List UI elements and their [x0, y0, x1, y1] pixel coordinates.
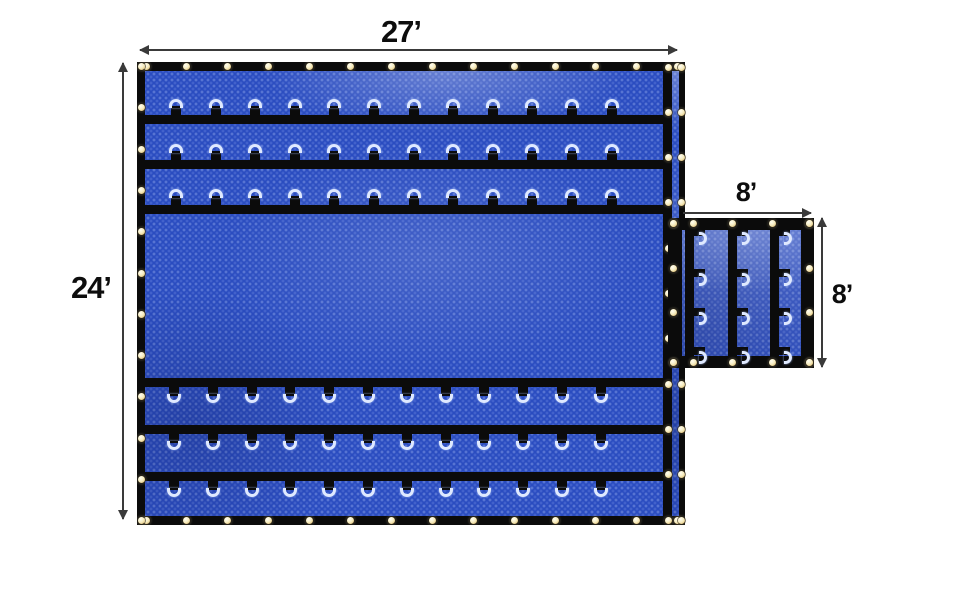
grommet [138, 435, 145, 442]
d-ring [282, 386, 298, 404]
d-ring-arc [367, 144, 381, 153]
d-ring-arc [439, 441, 453, 450]
grommet [665, 517, 672, 524]
d-ring [445, 99, 461, 117]
grommet [806, 309, 813, 316]
grommet [678, 199, 685, 206]
d-ring-arc [167, 394, 181, 403]
grommet [138, 270, 145, 277]
grommet [633, 63, 640, 70]
grommet [690, 220, 697, 227]
d-ring [208, 189, 224, 207]
d-ring-arc [288, 189, 302, 198]
d-ring-arc [322, 488, 336, 497]
d-ring [244, 386, 260, 404]
arrowhead-up-icon [118, 62, 128, 72]
d-ring-arc [699, 351, 707, 364]
d-ring [287, 144, 303, 162]
d-ring [247, 99, 263, 117]
d-ring [287, 99, 303, 117]
d-ring [205, 480, 221, 498]
d-ring-arc [594, 394, 608, 403]
d-ring-arc [206, 488, 220, 497]
grommet [138, 228, 145, 235]
grommet [670, 309, 677, 316]
d-ring [476, 433, 492, 451]
webbing-strip [685, 228, 694, 358]
d-ring [485, 99, 501, 117]
d-ring [321, 480, 337, 498]
d-ring [476, 386, 492, 404]
tarp-dimension-diagram: 27’ 24’ 8’ 8’ [0, 0, 970, 600]
dimension-line [683, 212, 811, 214]
d-ring-arc [361, 441, 375, 450]
d-ring-arc [605, 189, 619, 198]
d-ring [168, 189, 184, 207]
flap-width-dimension-label: 8’ [696, 179, 796, 206]
grommet [511, 517, 518, 524]
d-ring [554, 386, 570, 404]
d-ring [244, 433, 260, 451]
grommet [265, 63, 272, 70]
main-tarp [137, 62, 685, 525]
d-ring-arc [283, 394, 297, 403]
d-ring-arc [327, 189, 341, 198]
d-ring [205, 433, 221, 451]
d-ring [438, 433, 454, 451]
d-ring [321, 386, 337, 404]
d-ring [360, 386, 376, 404]
grommet [806, 359, 813, 366]
grommet [769, 220, 776, 227]
grommet [665, 64, 672, 71]
d-ring [515, 480, 531, 498]
d-ring [208, 99, 224, 117]
d-ring-arc [594, 441, 608, 450]
grommet [633, 517, 640, 524]
d-ring-arc [446, 144, 460, 153]
d-ring-arc [248, 189, 262, 198]
grommet [690, 359, 697, 366]
main-width-dimension-label: 27’ [351, 16, 451, 47]
d-ring [208, 144, 224, 162]
d-ring-arc [245, 488, 259, 497]
grommet [347, 517, 354, 524]
grommet [592, 517, 599, 524]
grommet [665, 199, 672, 206]
grommet [678, 471, 685, 478]
arrowhead-right-icon [668, 45, 678, 55]
d-ring-arc [555, 441, 569, 450]
d-ring [166, 480, 182, 498]
webbing-strip [728, 228, 737, 358]
grommet [769, 359, 776, 366]
d-ring-arc [486, 99, 500, 108]
grommet [665, 471, 672, 478]
grommet [138, 311, 145, 318]
d-ring [445, 144, 461, 162]
d-ring-arc [322, 394, 336, 403]
d-ring [399, 386, 415, 404]
grommet [306, 63, 313, 70]
d-ring [366, 189, 382, 207]
d-ring-arc [367, 189, 381, 198]
d-ring-arc [516, 488, 530, 497]
webbing-strip [770, 228, 779, 358]
grommet [388, 517, 395, 524]
d-ring [166, 386, 182, 404]
grommet [552, 63, 559, 70]
d-ring [476, 480, 492, 498]
d-ring [524, 144, 540, 162]
d-ring [326, 144, 342, 162]
d-ring [445, 189, 461, 207]
grommet [678, 64, 685, 71]
d-ring-arc [477, 394, 491, 403]
grommet [729, 359, 736, 366]
d-ring-arc [327, 144, 341, 153]
d-ring-arc [477, 441, 491, 450]
d-ring-arc [169, 99, 183, 108]
d-ring-arc [486, 189, 500, 198]
d-ring-arc [209, 144, 223, 153]
d-ring-arc [248, 144, 262, 153]
d-ring [168, 144, 184, 162]
main-width-dimension-line [140, 44, 677, 56]
d-ring-arc [555, 488, 569, 497]
d-ring [366, 144, 382, 162]
d-ring [282, 480, 298, 498]
d-ring-arc [605, 99, 619, 108]
d-ring [321, 433, 337, 451]
d-ring-arc [565, 144, 579, 153]
d-ring [360, 433, 376, 451]
d-ring [564, 99, 580, 117]
grommet [347, 63, 354, 70]
grommet [138, 187, 145, 194]
d-ring-arc [439, 488, 453, 497]
grommet [183, 517, 190, 524]
d-ring-arc [605, 144, 619, 153]
d-ring [593, 386, 609, 404]
grommet [138, 476, 145, 483]
dimension-line [140, 49, 677, 51]
d-ring [524, 189, 540, 207]
dimension-line [122, 63, 124, 519]
d-ring [438, 480, 454, 498]
d-ring-arc [361, 488, 375, 497]
d-ring-arc [209, 189, 223, 198]
d-ring-arc [742, 351, 750, 364]
d-ring [282, 433, 298, 451]
grommet [470, 63, 477, 70]
grommet [665, 154, 672, 161]
grommet [183, 63, 190, 70]
d-ring-arc [288, 99, 302, 108]
d-ring-arc [206, 394, 220, 403]
grommet [265, 517, 272, 524]
d-ring-arc [407, 99, 421, 108]
d-ring-arc [283, 488, 297, 497]
grommet [670, 220, 677, 227]
d-ring-arc [555, 394, 569, 403]
dimension-line [821, 218, 823, 367]
d-ring [247, 144, 263, 162]
arrowhead-down-icon [817, 358, 827, 368]
arrowhead-right-icon [802, 208, 812, 218]
d-ring-arc [361, 394, 375, 403]
d-ring-arc [525, 189, 539, 198]
d-ring [524, 99, 540, 117]
side-flap-fabric [682, 230, 801, 356]
d-ring [247, 189, 263, 207]
grommet [306, 517, 313, 524]
d-ring [166, 433, 182, 451]
grommet [138, 146, 145, 153]
d-ring [366, 99, 382, 117]
flap-height-dimension-line [816, 218, 828, 367]
d-ring [205, 386, 221, 404]
d-ring [485, 144, 501, 162]
grommet [670, 359, 677, 366]
grommet [429, 517, 436, 524]
d-ring-arc [167, 441, 181, 450]
d-ring [554, 433, 570, 451]
grommet [470, 517, 477, 524]
d-ring [593, 480, 609, 498]
d-ring-arc [565, 99, 579, 108]
grommet [138, 104, 145, 111]
d-ring-arc [516, 441, 530, 450]
side-flap [668, 218, 814, 368]
grommet [670, 265, 677, 272]
grommet [665, 109, 672, 116]
d-ring-arc [477, 488, 491, 497]
d-ring-arc [169, 189, 183, 198]
d-ring [360, 480, 376, 498]
d-ring [406, 144, 422, 162]
d-ring-arc [400, 441, 414, 450]
d-ring-arc [439, 394, 453, 403]
d-ring-arc [367, 99, 381, 108]
grommet [224, 517, 231, 524]
grommet [678, 154, 685, 161]
d-ring [244, 480, 260, 498]
d-ring-arc [525, 144, 539, 153]
d-ring-arc [327, 99, 341, 108]
d-ring [515, 386, 531, 404]
grommet [138, 393, 145, 400]
d-ring [604, 189, 620, 207]
d-ring [604, 99, 620, 117]
grommet [665, 381, 672, 388]
d-ring-arc [784, 351, 792, 364]
d-ring-arc [209, 99, 223, 108]
d-ring-arc [400, 488, 414, 497]
arrowhead-left-icon [139, 45, 149, 55]
d-ring-arc [516, 394, 530, 403]
grommet [138, 352, 145, 359]
d-ring [564, 144, 580, 162]
grommet [665, 426, 672, 433]
grommet [388, 63, 395, 70]
grommet [678, 109, 685, 116]
d-ring-arc [206, 441, 220, 450]
d-ring [326, 189, 342, 207]
d-ring [554, 480, 570, 498]
grommet [806, 265, 813, 272]
d-ring-arc [446, 189, 460, 198]
grommet [678, 517, 685, 524]
d-ring [406, 99, 422, 117]
d-ring-arc [486, 144, 500, 153]
main-height-dimension-line [117, 63, 129, 519]
d-ring [593, 433, 609, 451]
arrowhead-up-icon [817, 217, 827, 227]
grommet [678, 426, 685, 433]
d-ring [399, 480, 415, 498]
d-ring [406, 189, 422, 207]
grommet [592, 63, 599, 70]
grommet [511, 63, 518, 70]
d-ring-arc [248, 99, 262, 108]
d-ring [326, 99, 342, 117]
d-ring [515, 433, 531, 451]
d-ring [438, 386, 454, 404]
grommet [678, 381, 685, 388]
d-ring-arc [525, 99, 539, 108]
grommet [552, 517, 559, 524]
d-ring [604, 144, 620, 162]
d-ring-arc [400, 394, 414, 403]
d-ring [399, 433, 415, 451]
d-ring-arc [407, 144, 421, 153]
d-ring-arc [245, 394, 259, 403]
d-ring-arc [594, 488, 608, 497]
grommet [429, 63, 436, 70]
d-ring-arc [565, 189, 579, 198]
arrowhead-down-icon [118, 510, 128, 520]
d-ring-arc [322, 441, 336, 450]
d-ring-arc [288, 144, 302, 153]
d-ring [485, 189, 501, 207]
d-ring [564, 189, 580, 207]
d-ring-arc [167, 488, 181, 497]
d-ring-arc [283, 441, 297, 450]
grommet [729, 220, 736, 227]
d-ring [168, 99, 184, 117]
grommet [138, 63, 145, 70]
d-ring [287, 189, 303, 207]
d-ring-arc [245, 441, 259, 450]
grommet [806, 220, 813, 227]
grommet [224, 63, 231, 70]
d-ring-arc [407, 189, 421, 198]
d-ring-arc [169, 144, 183, 153]
d-ring-arc [446, 99, 460, 108]
